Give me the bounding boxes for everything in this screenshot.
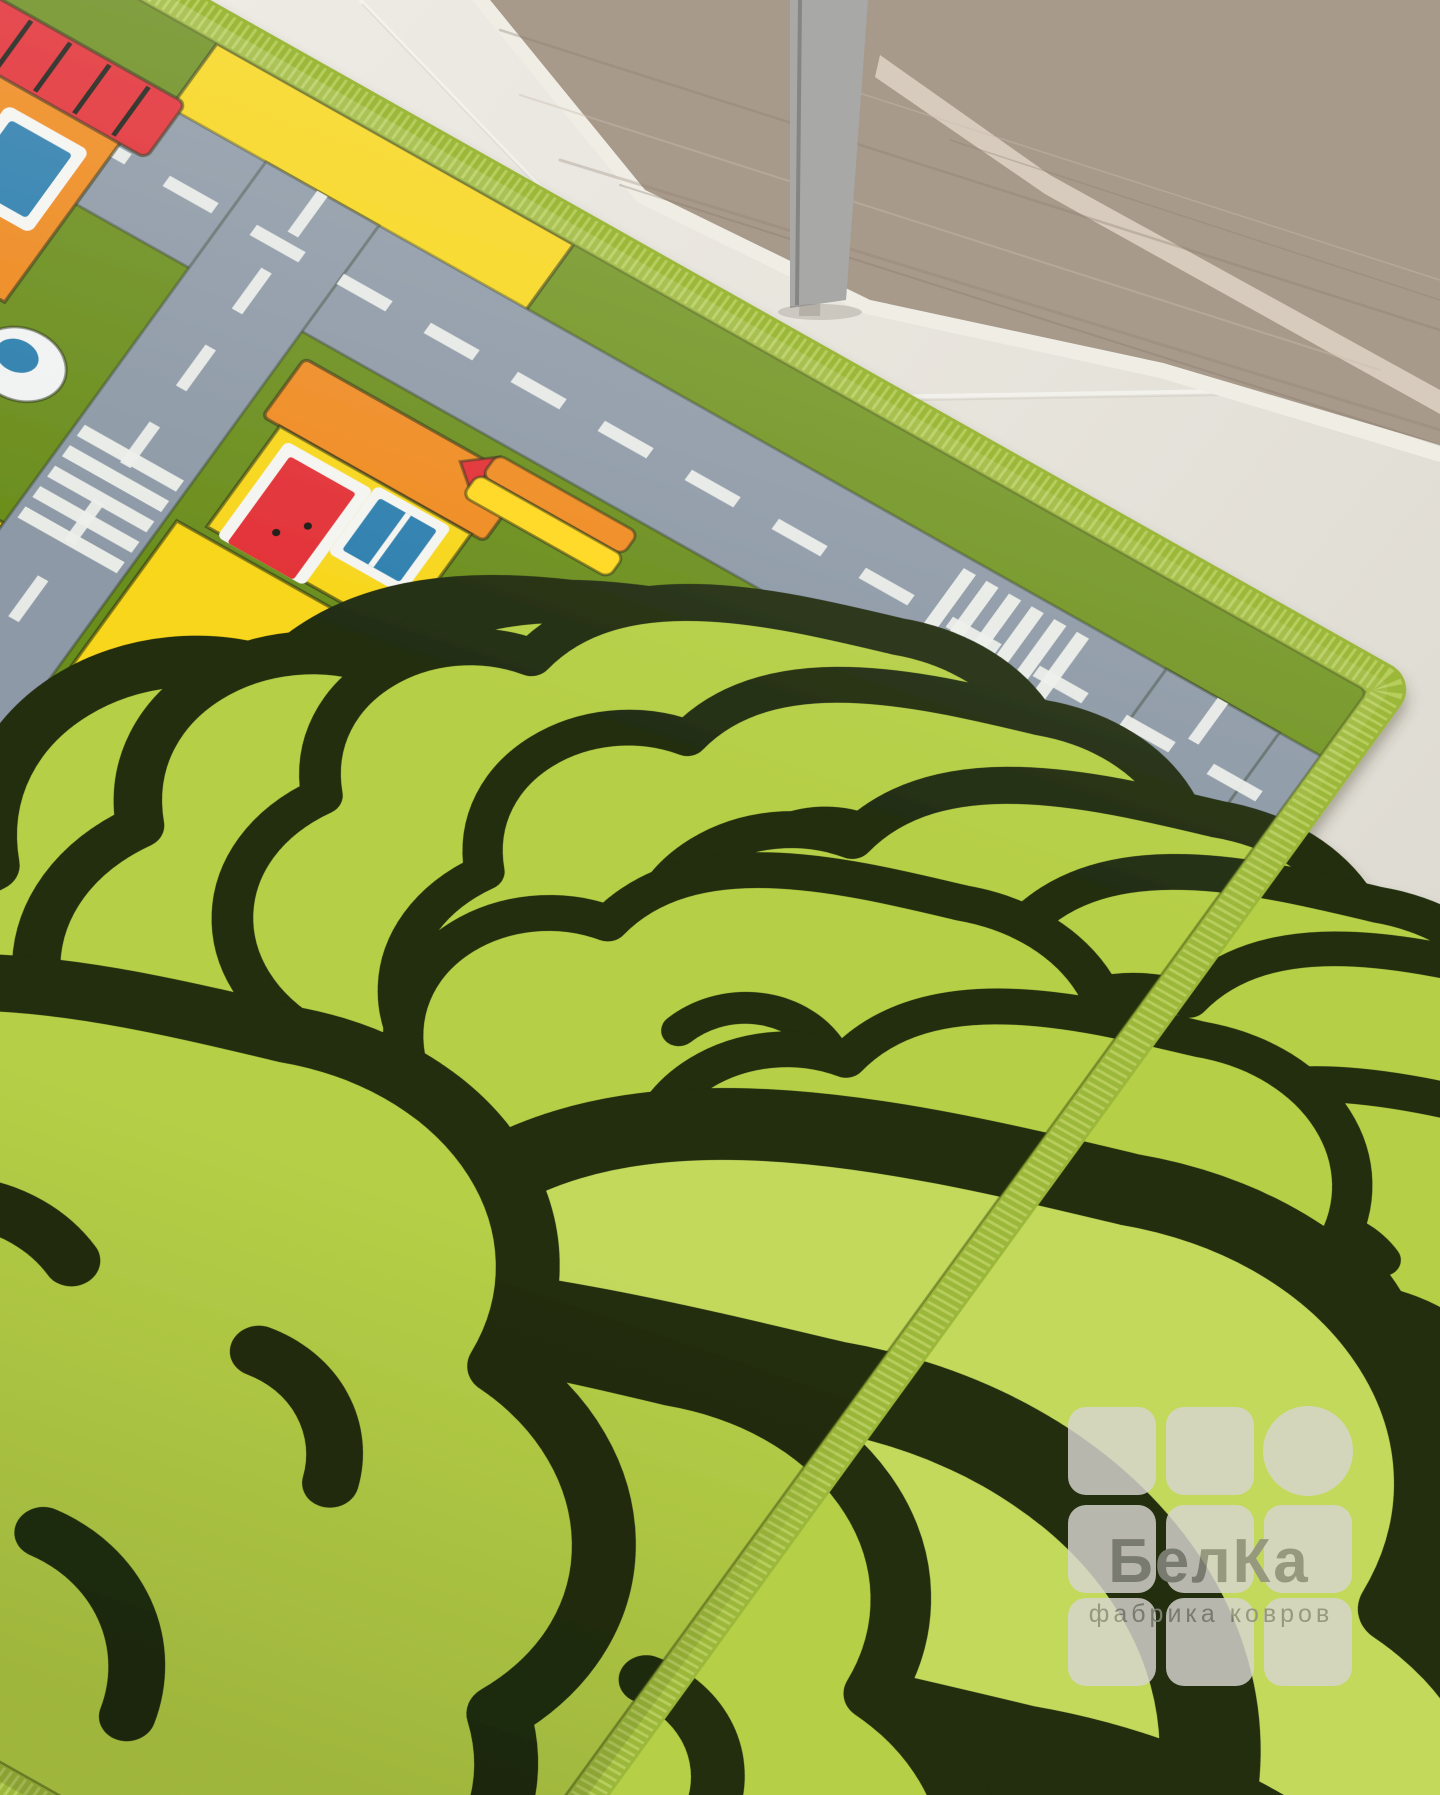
watermark-tagline-text: фабрика ковров (1089, 1600, 1334, 1628)
watermark-brand-text: БелКа (1108, 1527, 1310, 1596)
photo-scene: БелКа фабрика ковров (0, 0, 1440, 1795)
watermark-logo: БелКа фабрика ковров (1068, 1406, 1353, 1686)
